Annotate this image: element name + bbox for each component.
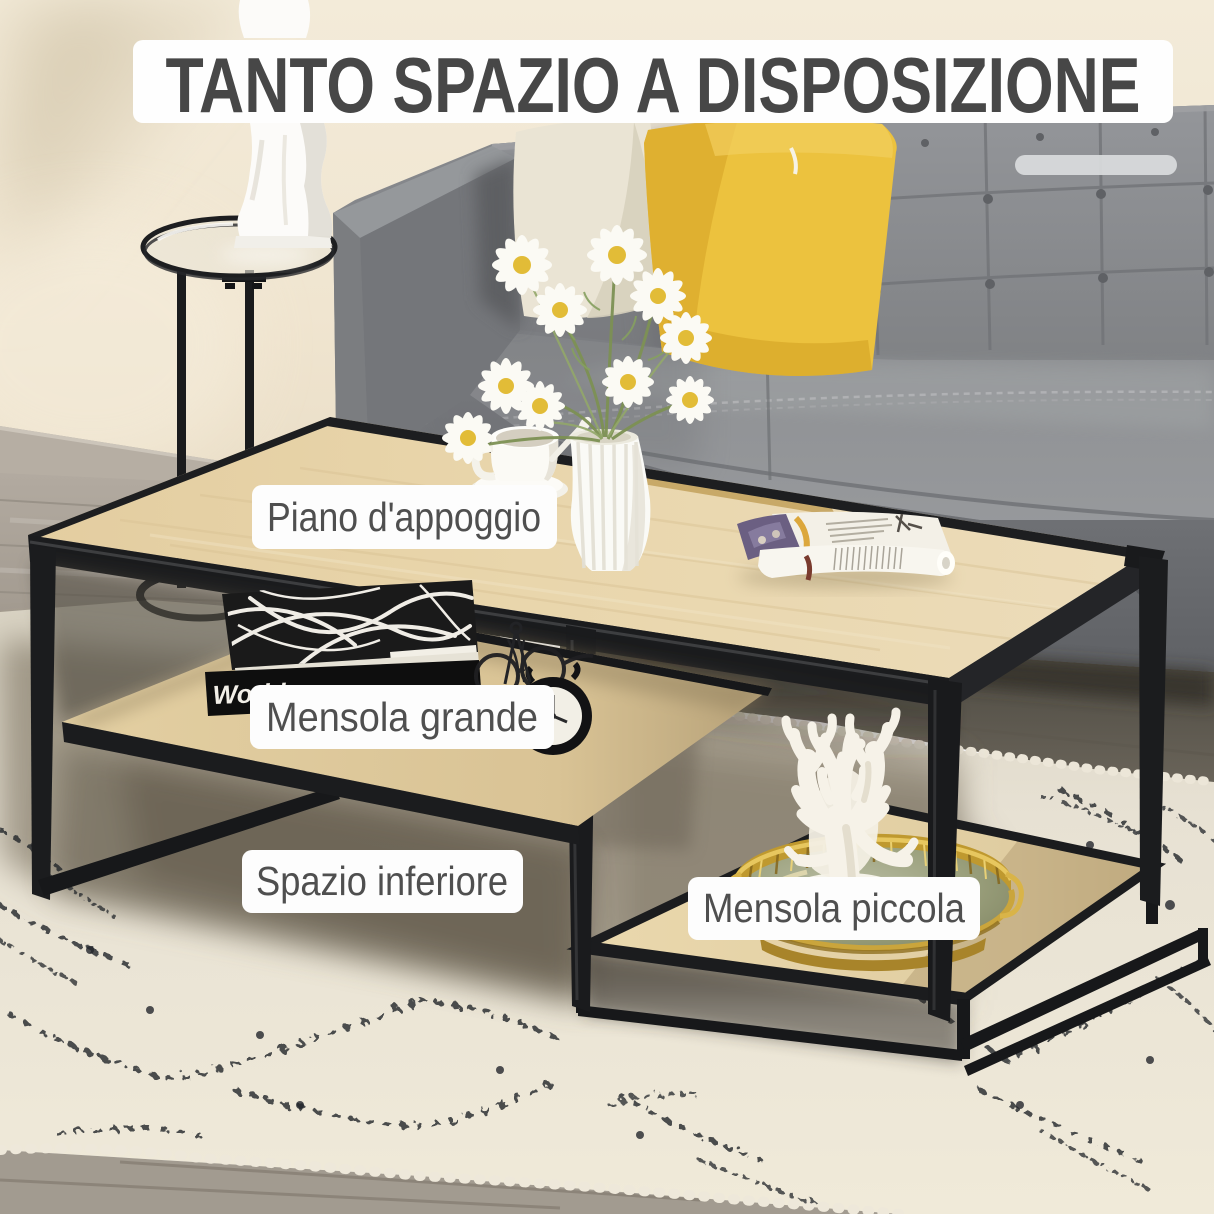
svg-text:Spazio inferiore: Spazio inferiore	[256, 858, 508, 904]
svg-text:Piano d'appoggio: Piano d'appoggio	[267, 494, 541, 540]
svg-text:Mensola grande: Mensola grande	[266, 694, 538, 740]
svg-text:Mensola piccola: Mensola piccola	[703, 885, 965, 931]
svg-text:TANTO SPAZIO A DISPOSIZIONE: TANTO SPAZIO A DISPOSIZIONE	[166, 41, 1141, 129]
